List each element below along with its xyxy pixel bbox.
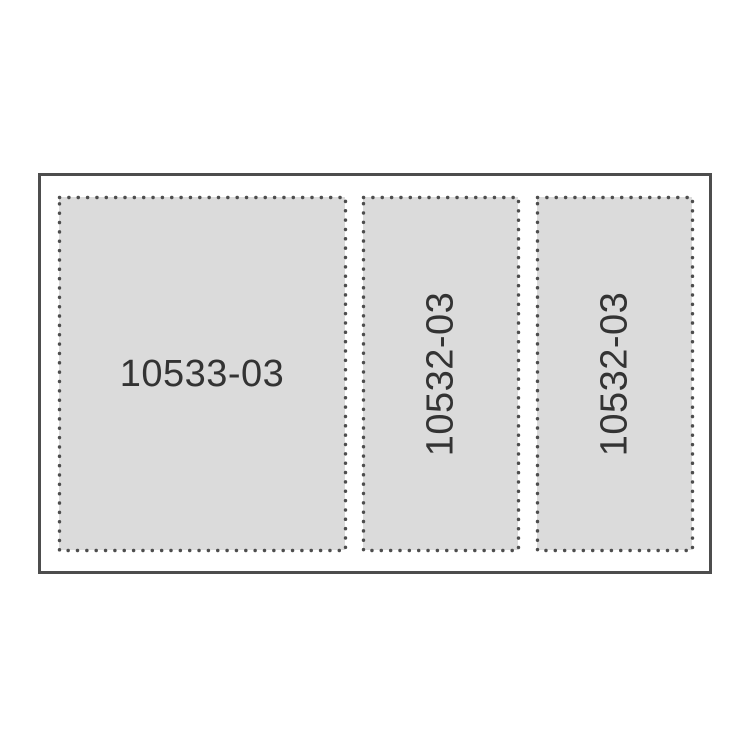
diagram-canvas: 10533-03 10532-03 10532-03: [0, 0, 752, 750]
panel-10532-03-middle: 10532-03: [363, 197, 518, 550]
panel-10532-03-right: 10532-03: [537, 197, 692, 550]
panel-label-10532-03-middle: 10532-03: [422, 291, 460, 456]
panel-label-10533-03: 10533-03: [120, 355, 285, 393]
sheet-outline-frame: 10533-03 10532-03 10532-03: [38, 173, 712, 574]
panel-label-10532-03-right: 10532-03: [596, 291, 634, 456]
panel-10533-03: 10533-03: [59, 197, 345, 550]
